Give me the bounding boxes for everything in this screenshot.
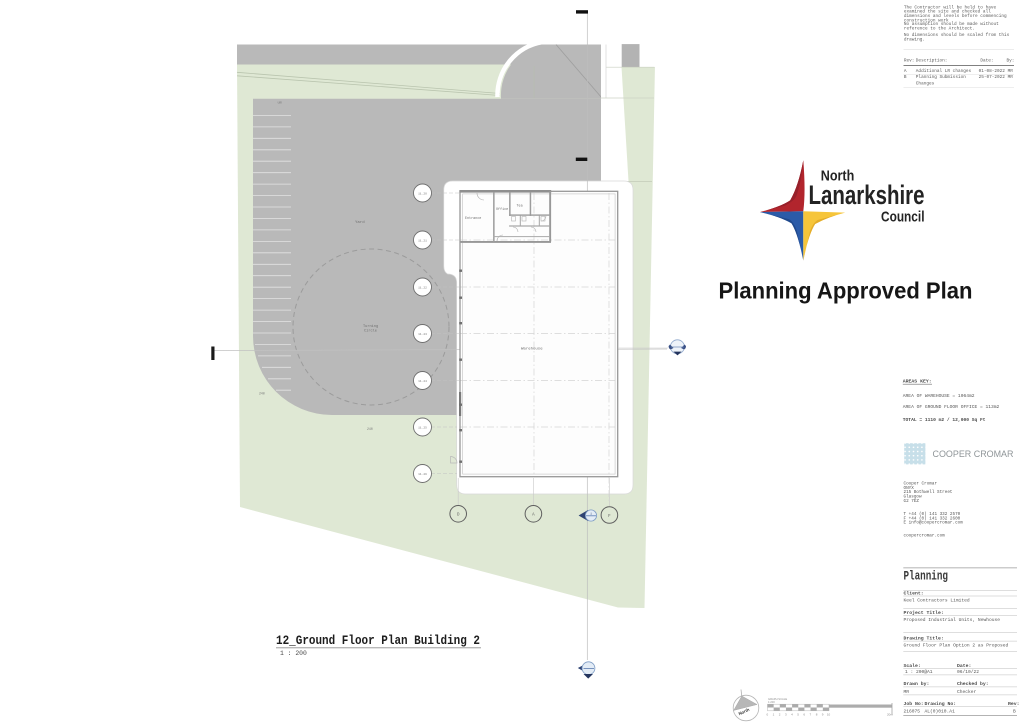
svg-text:coopercromar.com: coopercromar.com xyxy=(904,534,946,539)
svg-text:Council: Council xyxy=(881,209,925,226)
svg-text:Proposed Industrial Units, New: Proposed Industrial Units, Newhouse xyxy=(904,617,1001,623)
svg-text:A: A xyxy=(904,69,907,74)
svg-text:240: 240 xyxy=(259,392,265,396)
svg-text:G2 7EZ: G2 7EZ xyxy=(904,499,920,504)
svg-text:10: 10 xyxy=(827,712,831,716)
svg-text:11.26: 11.26 xyxy=(418,473,427,476)
svg-text:Circle: Circle xyxy=(364,329,377,334)
svg-text:AREAS KEY:: AREAS KEY: xyxy=(903,379,932,385)
svg-text:drawing.: drawing. xyxy=(904,37,925,42)
svg-text:06/10/22: 06/10/22 xyxy=(957,669,979,675)
svg-text:20m: 20m xyxy=(887,712,893,716)
svg-text:1:200: 1:200 xyxy=(768,700,775,704)
svg-text:Checker: Checker xyxy=(957,689,977,695)
svg-text:11.23: 11.23 xyxy=(418,333,427,336)
svg-text:Planning Submission: Planning Submission xyxy=(916,75,966,80)
svg-text:1 : 200: 1 : 200 xyxy=(280,650,307,657)
svg-text:11.25: 11.25 xyxy=(418,426,427,429)
svg-text:B: B xyxy=(1013,709,1016,715)
svg-text:Keel Contractors Limited: Keel Contractors Limited xyxy=(904,597,970,603)
svg-text:Scale:: Scale: xyxy=(904,663,921,669)
svg-text:01-08-2022 MR: 01-08-2022 MR xyxy=(979,69,1014,74)
svg-text:Rev:: Rev: xyxy=(904,58,915,63)
svg-text:Drawn by:: Drawn by: xyxy=(904,681,930,687)
svg-text:Checked by:: Checked by: xyxy=(957,681,989,687)
svg-text:Changes: Changes xyxy=(916,81,935,86)
svg-text:Entrance: Entrance xyxy=(465,216,481,221)
svg-text:Drawing No:: Drawing No: xyxy=(925,701,957,707)
svg-text:Additional LR changes: Additional LR changes xyxy=(916,69,972,74)
svg-text:By:: By: xyxy=(1007,58,1015,63)
svg-text:11.24: 11.24 xyxy=(418,380,427,383)
svg-text:Drawing Title:: Drawing Title: xyxy=(904,635,944,641)
svg-text:Planning Approved Plan: Planning Approved Plan xyxy=(719,278,973,304)
svg-text:216075: 216075 xyxy=(904,709,921,715)
svg-text:12_Ground Floor Plan Building: 12_Ground Floor Plan Building 2 xyxy=(276,634,480,648)
svg-text:11.21: 11.21 xyxy=(418,239,427,242)
svg-text:Description:: Description: xyxy=(916,58,948,63)
svg-text:Warehouse: Warehouse xyxy=(521,347,543,352)
svg-text:Office: Office xyxy=(496,207,508,212)
svg-text:AREA OF WAREHOUSE = 1064m2: AREA OF WAREHOUSE = 1064m2 xyxy=(903,393,975,399)
svg-text:240: 240 xyxy=(367,427,373,431)
svg-text:um: um xyxy=(278,102,282,106)
svg-text:Date:: Date: xyxy=(957,663,971,669)
svg-text:COOPER CROMAR: COOPER CROMAR xyxy=(933,449,1014,459)
svg-text:E info@coopercromar.com: E info@coopercromar.com xyxy=(904,521,964,526)
svg-text:AREA OF GROUND FLOOR OFFICE =: AREA OF GROUND FLOOR OFFICE = 113m2 xyxy=(903,404,1000,410)
svg-text:Tea: Tea xyxy=(517,205,523,209)
svg-text:Planning: Planning xyxy=(904,570,949,584)
svg-text:AL(0)010.A1: AL(0)010.A1 xyxy=(925,709,956,715)
svg-text:Turning: Turning xyxy=(363,324,378,329)
svg-text:Client:: Client: xyxy=(904,590,924,596)
svg-text:Rev:: Rev: xyxy=(1008,701,1020,707)
svg-text:MR: MR xyxy=(904,689,910,695)
svg-text:B: B xyxy=(904,75,907,80)
svg-text:TOTAL = 1110 m2 / 12,000 Sq Ft: TOTAL = 1110 m2 / 12,000 Sq Ft xyxy=(903,417,986,423)
svg-text:Project Title:: Project Title: xyxy=(904,610,944,616)
svg-text:reference to the Architect.: reference to the Architect. xyxy=(904,26,975,31)
svg-text:Job No:: Job No: xyxy=(904,701,924,707)
svg-text:Lanarkshire: Lanarkshire xyxy=(809,180,925,210)
svg-text:1: 1 xyxy=(590,513,592,516)
svg-text:1 : 200@A1: 1 : 200@A1 xyxy=(905,669,933,675)
svg-text:25-07-2022 MR: 25-07-2022 MR xyxy=(979,75,1014,80)
svg-text:Yard: Yard xyxy=(355,220,365,225)
svg-text:11.20: 11.20 xyxy=(418,192,427,195)
svg-text:Ground Floor Plan Option 2 as: Ground Floor Plan Option 2 as Proposed xyxy=(904,643,1009,649)
svg-text:Date:: Date: xyxy=(980,58,993,63)
svg-text:11.22: 11.22 xyxy=(418,286,427,289)
